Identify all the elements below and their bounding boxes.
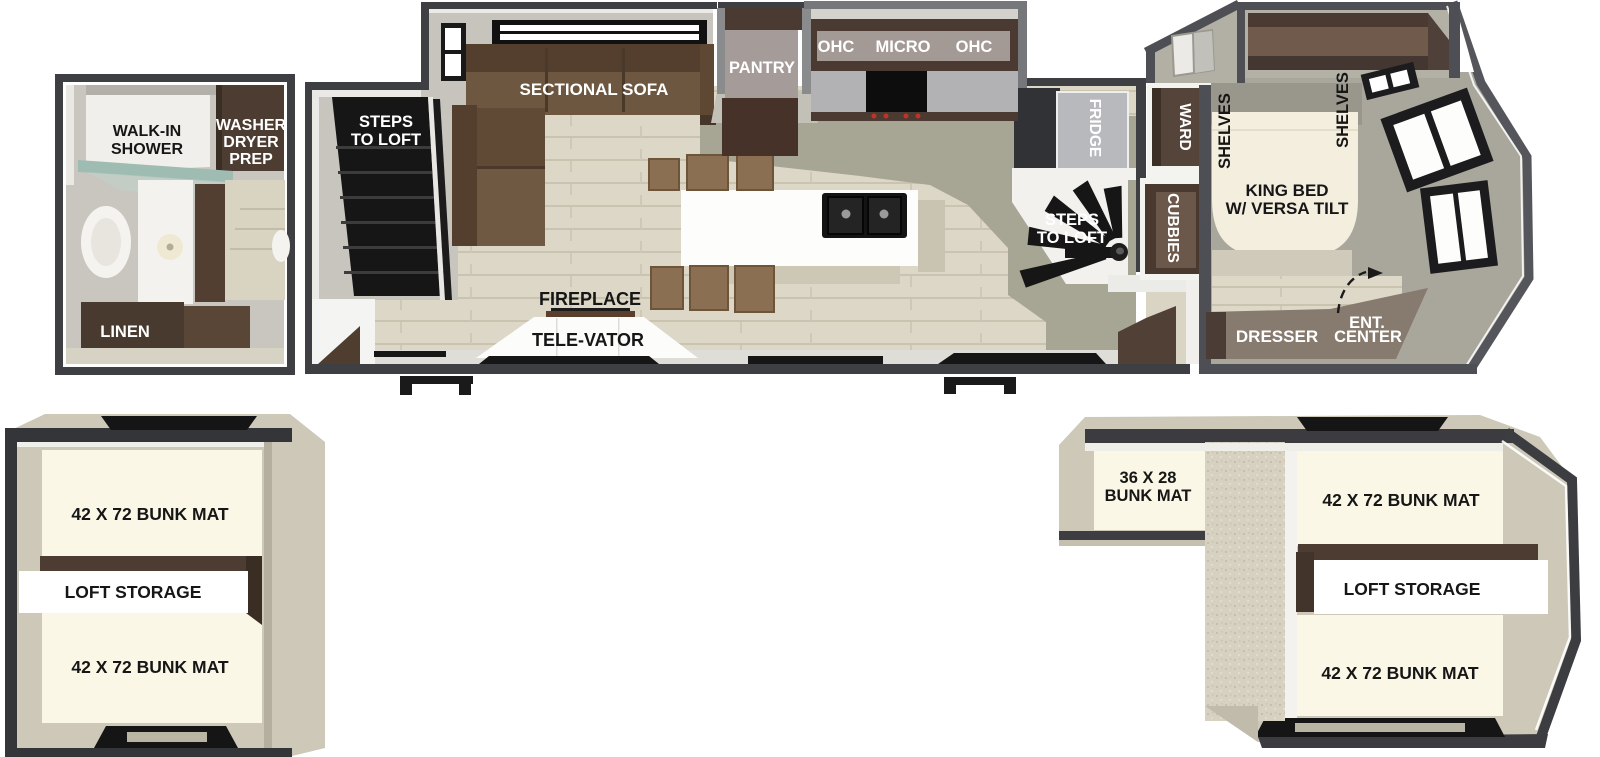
svg-text:42 X 72 BUNK MAT: 42 X 72 BUNK MAT [1321, 663, 1479, 683]
svg-text:TO LOFT: TO LOFT [1037, 229, 1107, 247]
svg-text:36 X 28: 36 X 28 [1120, 469, 1177, 487]
svg-text:WASHER: WASHER [216, 117, 287, 134]
svg-text:CENTER: CENTER [1334, 328, 1402, 346]
svg-text:CUBBIES: CUBBIES [1164, 193, 1181, 263]
svg-text:WARD: WARD [1176, 103, 1193, 150]
svg-text:DRYER: DRYER [223, 134, 279, 151]
svg-text:PANTRY: PANTRY [729, 59, 795, 77]
svg-text:FRIDGE: FRIDGE [1086, 99, 1103, 158]
svg-text:TELE-VATOR: TELE-VATOR [532, 330, 644, 350]
svg-text:MICRO: MICRO [876, 38, 931, 56]
svg-text:SECTIONAL SOFA: SECTIONAL SOFA [520, 80, 669, 99]
svg-text:OHC: OHC [956, 38, 993, 56]
svg-text:KING BED: KING BED [1245, 181, 1328, 200]
svg-text:STEPS: STEPS [359, 113, 413, 131]
svg-text:SHOWER: SHOWER [111, 141, 183, 158]
svg-text:FIREPLACE: FIREPLACE [539, 289, 641, 309]
svg-text:42 X 72 BUNK MAT: 42 X 72 BUNK MAT [71, 657, 229, 677]
svg-text:DRESSER: DRESSER [1236, 327, 1318, 346]
svg-text:BUNK MAT: BUNK MAT [1105, 487, 1192, 505]
svg-text:W/ VERSA TILT: W/ VERSA TILT [1226, 199, 1349, 218]
svg-text:SHELVES: SHELVES [1216, 93, 1234, 169]
svg-text:PREP: PREP [229, 151, 273, 168]
svg-text:SHELVES: SHELVES [1334, 72, 1352, 148]
svg-text:LOFT STORAGE: LOFT STORAGE [1344, 579, 1481, 599]
svg-text:OHC: OHC [818, 38, 855, 56]
svg-text:WALK-IN: WALK-IN [113, 123, 181, 140]
svg-text:42 X 72 BUNK MAT: 42 X 72 BUNK MAT [1322, 490, 1480, 510]
svg-text:42 X 72 BUNK MAT: 42 X 72 BUNK MAT [71, 504, 229, 524]
svg-text:STEPS: STEPS [1045, 211, 1099, 229]
svg-text:TO LOFT: TO LOFT [351, 131, 421, 149]
svg-text:LINEN: LINEN [100, 323, 150, 341]
svg-text:LOFT STORAGE: LOFT STORAGE [65, 582, 202, 602]
